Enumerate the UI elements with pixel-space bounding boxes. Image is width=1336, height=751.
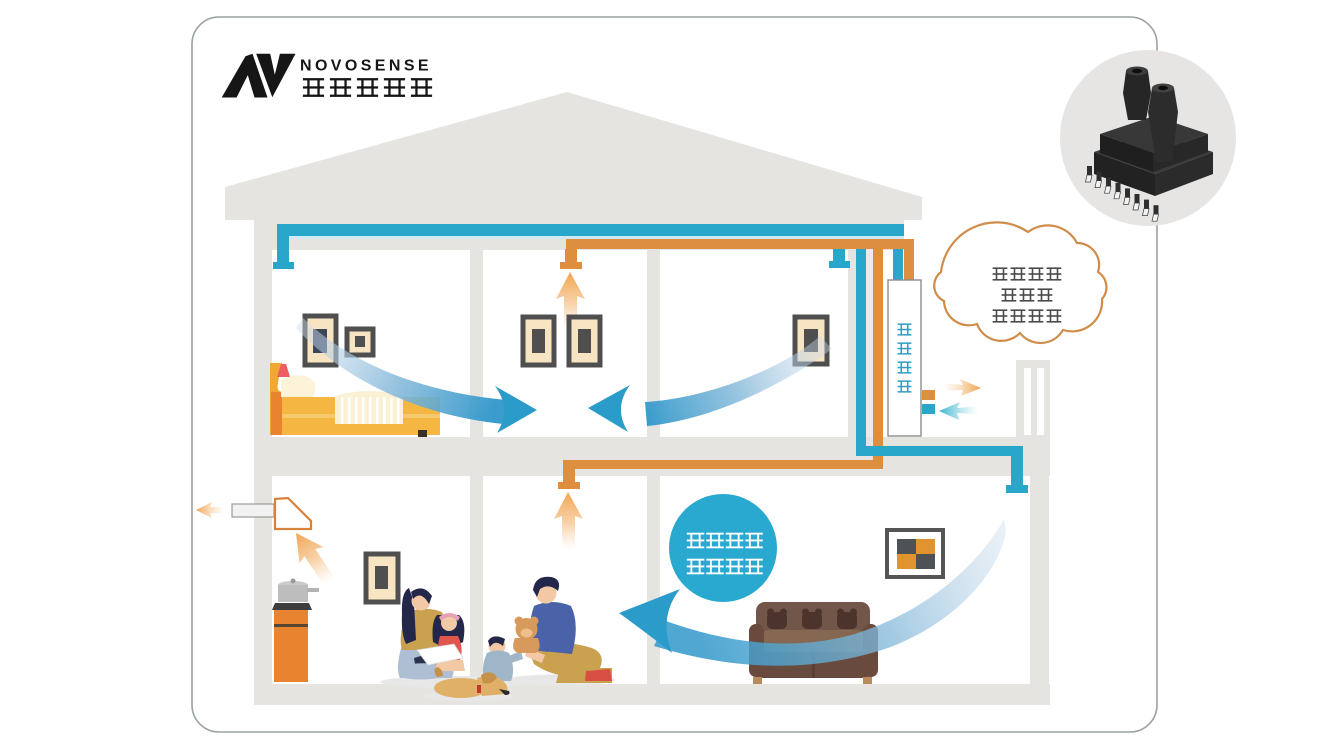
svg-text:NOVOSENSE: NOVOSENSE: [300, 58, 432, 75]
